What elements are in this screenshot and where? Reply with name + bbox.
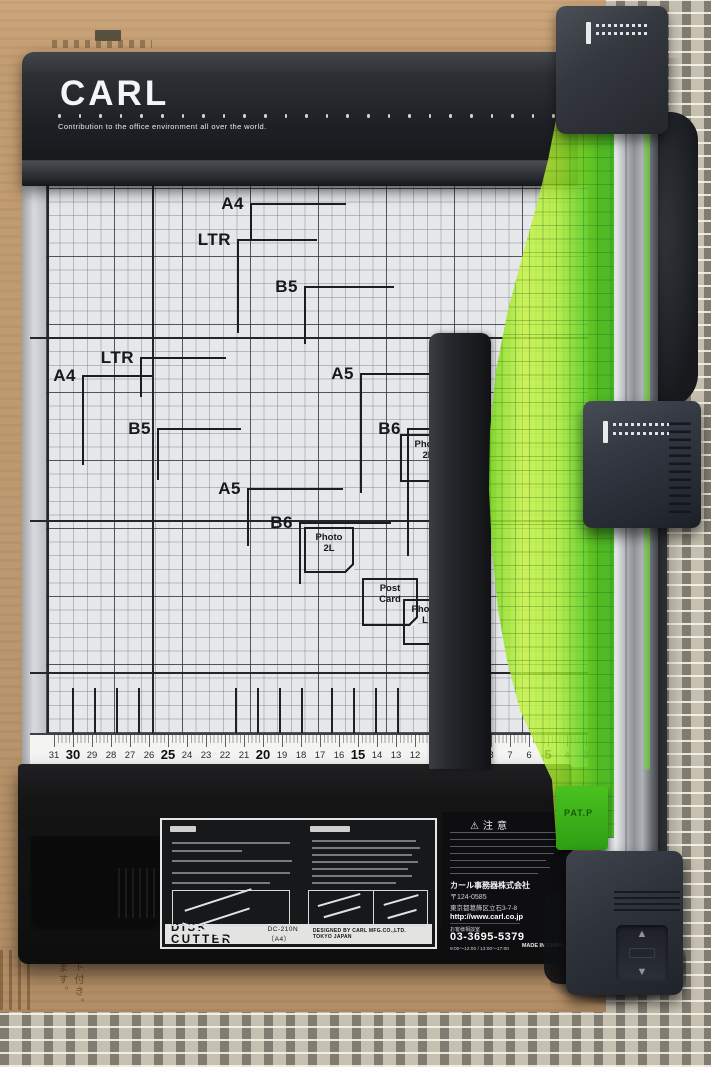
microtext-line [450,860,546,861]
board-left-edge [22,183,48,769]
label-microtext [613,423,669,426]
patent-label: PAT.P [564,808,593,818]
brand-logo: CARL [60,74,169,114]
ruler-number: 31 [49,750,60,761]
microtext-line [172,842,290,844]
dot [243,114,246,118]
ruler-number: 23 [201,750,212,761]
ruler-number: 30 [66,747,80,762]
ruler-number: 15 [351,747,365,762]
ruler-number: 25 [161,747,175,762]
instruction-label-footer: DISK CUTTER DC-210N〔A4〕 DESIGNED BY CARL… [165,924,432,944]
dot [552,114,555,118]
label-microtext [613,432,669,435]
ruler-number: 29 [87,750,98,761]
ruler-number: 21 [239,750,250,761]
support-phone: 03-3695-5379 [450,931,525,943]
ruler-number: 18 [296,750,307,761]
dot [99,114,102,118]
dot [305,114,308,118]
slider-grip-ridges [669,421,691,513]
dot [408,114,411,118]
diagram-box [308,890,428,926]
ruler-number: 12 [410,750,421,761]
ruler-number: 24 [182,750,193,761]
caution-heading: ⚠注意 [470,817,511,832]
clamp-bar-lip [22,160,578,186]
microtext-line [312,840,416,842]
dot [161,114,164,118]
warning-icon: ⚠ [470,821,479,832]
ruler-number: 17 [315,750,326,761]
maker-credit: DESIGNED BY CARL MFG.CO.,LTD. TOKYO JAPA… [313,928,426,940]
microtext-line [450,853,554,854]
dot [79,114,82,118]
microtext-line [172,882,270,884]
ruler-number: 7 [507,750,512,761]
label-bar [586,22,591,44]
microtext-line [172,850,242,852]
ruler-number: 14 [372,750,383,761]
arrow-down-icon: ▼ [637,967,648,977]
microtext-line [312,847,420,849]
dot [429,114,432,118]
dot [223,114,226,118]
diagram-divider [373,891,374,925]
rail-cap-label [586,20,650,46]
diagram-box [172,890,290,926]
postal-code: 〒124-0585 [450,892,487,902]
microtext-line [450,839,558,840]
microtext-line [450,873,538,874]
base-emboss-marks [118,868,158,918]
dot [264,114,267,118]
ruler-number: 13 [391,750,402,761]
lock-button [629,948,655,958]
microtext-line [172,872,290,874]
label-bar [603,421,608,443]
microtext-line [450,832,562,833]
product-model: DC-210N〔A4〕 [268,926,313,943]
microtext-line [312,882,396,884]
section-chip [170,826,196,832]
cardboard-vertical-text: ます。 [54,962,69,998]
rail-top-cap [556,6,668,134]
dot [511,114,514,118]
microtext-line [450,846,560,847]
microtext-line [312,868,408,870]
microtext-line [172,860,292,862]
dot [367,114,370,118]
paper-clamp-bar [429,333,491,769]
label-microtext [596,32,648,35]
ruler-number: 19 [277,750,288,761]
ruler-number: 6 [526,750,531,761]
dot [346,114,349,118]
microtext-line [450,867,550,868]
dot [532,114,535,118]
microtext-line [312,854,412,856]
company-name: カール事務器株式会社 [450,880,530,891]
dot [140,114,143,118]
ruler-number: 22 [220,750,231,761]
ruler-number: 28 [106,750,117,761]
decorative-dots [58,114,578,118]
rail-bottom-cap: ▲ ▼ [566,851,683,995]
brand-tagline: Contribution to the office environment a… [58,122,267,131]
dot [470,114,473,118]
dot [120,114,123,118]
endcap-grip-lines [614,887,680,911]
dot [202,114,205,118]
support-hours: 9:00〜12:00 / 13:00〜17:00 [450,945,509,952]
company-url: http://www.carl.co.jp [450,912,523,921]
cutter-slider [583,401,701,528]
instruction-label: DISK CUTTER DC-210N〔A4〕 DESIGNED BY CARL… [160,818,437,949]
ruler-number: 16 [334,750,345,761]
ruler-number: 27 [125,750,136,761]
guide-foot: PAT.P [556,786,608,850]
dot [182,114,185,118]
company-address: 東京都葛飾区立石3-7-8 [450,902,517,912]
ruler-number: 26 [144,750,155,761]
dot [326,114,329,118]
microtext-line [312,861,418,863]
dot [285,114,288,118]
dot [491,114,494,118]
ruler-scale: 3130292827262524232221201918171615141312… [30,733,588,767]
lock-release-recess: ▲ ▼ [616,925,668,981]
cardboard-print-marks [52,40,152,48]
slider-label [603,419,671,447]
microtext-line [312,875,412,877]
ruler-number: 20 [256,747,270,762]
dot [388,114,391,118]
label-microtext [596,24,648,27]
top-clamp-bar: CARL Contribution to the office environm… [22,52,578,186]
section-chip [310,826,350,832]
dot [58,114,61,118]
dot [449,114,452,118]
photo-scene: ット付き。 ます。 A4LTRB5LTRA4B5A5B6A5B6Photo2LP… [0,0,711,1067]
arrow-up-icon: ▲ [637,929,648,939]
